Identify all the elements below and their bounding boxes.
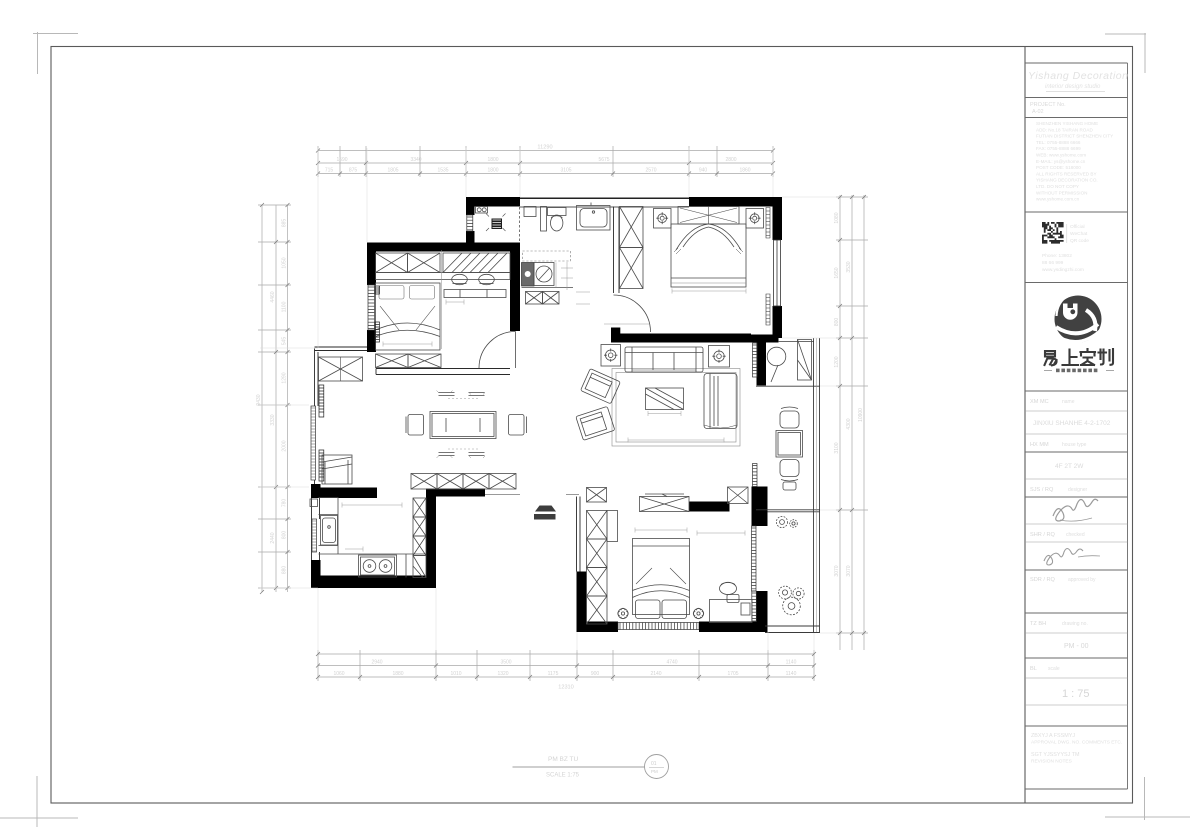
svg-text:Yishang Decoration: Yishang Decoration <box>1028 70 1128 82</box>
svg-text:1860: 1860 <box>739 168 750 174</box>
svg-text:715: 715 <box>325 168 334 174</box>
svg-text:3530: 3530 <box>846 261 852 272</box>
svg-text:9430: 9430 <box>256 394 262 405</box>
svg-text:1650: 1650 <box>834 267 840 278</box>
svg-text:checked: checked <box>1066 532 1085 538</box>
svg-text:REVISION NOTES: REVISION NOTES <box>1031 759 1072 765</box>
svg-text:WEB: www.yshome.com: WEB: www.yshome.com <box>1036 153 1086 158</box>
svg-text:SHR / RQ: SHR / RQ <box>1030 532 1056 538</box>
svg-text:1080: 1080 <box>834 212 840 223</box>
svg-text:A-02: A-02 <box>1032 109 1044 115</box>
svg-text:XM MC: XM MC <box>1030 399 1049 405</box>
svg-text:1290: 1290 <box>282 372 288 383</box>
svg-text:01: 01 <box>651 761 657 767</box>
svg-text:ADD: No.18 TAIRAN ROAD: ADD: No.18 TAIRAN ROAD <box>1036 127 1093 132</box>
svg-text:900: 900 <box>591 671 600 677</box>
svg-text:PM: PM <box>651 769 658 774</box>
svg-text:SCALE 1:75: SCALE 1:75 <box>546 773 580 779</box>
svg-text:1060: 1060 <box>333 671 344 677</box>
svg-text:885: 885 <box>282 219 288 228</box>
svg-text:WITHOUT PERMISSION: WITHOUT PERMISSION <box>1036 190 1087 195</box>
svg-text:ZBXYJ A FSSMYJ: ZBXYJ A FSSMYJ <box>1031 733 1075 739</box>
svg-text:2800: 2800 <box>725 157 736 163</box>
svg-text:5675: 5675 <box>598 157 609 163</box>
svg-text:PM BZ TU: PM BZ TU <box>548 756 579 763</box>
svg-text:WeChat: WeChat <box>1070 231 1088 237</box>
svg-text:JINXIU SHANHE 4-2-1702: JINXIU SHANHE 4-2-1702 <box>1033 420 1111 427</box>
svg-text:11290: 11290 <box>537 145 552 151</box>
svg-text:POST CODE: 518000: POST CODE: 518000 <box>1036 165 1081 170</box>
svg-text:www.ysdingzhi.com: www.ysdingzhi.com <box>1042 267 1084 273</box>
svg-text:4F 2T 2W: 4F 2T 2W <box>1055 463 1084 470</box>
svg-text:1200: 1200 <box>834 356 840 367</box>
svg-text:designer: designer <box>1068 487 1088 493</box>
svg-text:2140: 2140 <box>650 671 661 677</box>
svg-text:4460: 4460 <box>270 291 276 302</box>
svg-text:2000: 2000 <box>282 440 288 451</box>
svg-text:FUTIAN DISTRICT SHENZHEN CITY: FUTIAN DISTRICT SHENZHEN CITY <box>1036 134 1113 139</box>
svg-text:1010: 1010 <box>450 671 461 677</box>
svg-text:4300: 4300 <box>846 418 852 429</box>
svg-text:2940: 2940 <box>371 660 382 666</box>
svg-text:PROJECT No.: PROJECT No. <box>1030 102 1066 108</box>
svg-text:780: 780 <box>282 499 288 508</box>
svg-text:12310: 12310 <box>558 685 574 691</box>
svg-text:APPROVAL DWG. NO. COMMENTS ETC: APPROVAL DWG. NO. COMMENTS ETC. <box>1031 740 1122 746</box>
svg-text:SDR / RQ: SDR / RQ <box>1030 577 1056 583</box>
svg-text:approved by: approved by <box>1068 577 1096 583</box>
svg-text:LTD. DO NOT COPY: LTD. DO NOT COPY <box>1036 184 1079 189</box>
svg-text:1590: 1590 <box>336 157 347 163</box>
svg-text:545: 545 <box>282 337 288 346</box>
svg-text:3500: 3500 <box>500 660 511 666</box>
svg-text:1140: 1140 <box>786 671 797 677</box>
svg-text:1705: 1705 <box>727 671 738 677</box>
svg-text:PM - 00: PM - 00 <box>1064 643 1089 650</box>
svg-text:house type: house type <box>1062 442 1087 448</box>
svg-text:1050: 1050 <box>282 257 288 268</box>
svg-text:YISHANG DECORATION CO.: YISHANG DECORATION CO. <box>1036 178 1098 183</box>
svg-text:880: 880 <box>282 566 288 575</box>
svg-text:800: 800 <box>834 318 840 327</box>
svg-text:Official: Official <box>1070 224 1085 230</box>
svg-text:drawing no.: drawing no. <box>1062 621 1088 627</box>
svg-text:1140: 1140 <box>786 660 797 666</box>
svg-text:3105: 3105 <box>560 168 571 174</box>
svg-text:800: 800 <box>282 531 288 540</box>
svg-text:3340: 3340 <box>410 157 421 163</box>
svg-text:3070: 3070 <box>846 565 852 576</box>
svg-text:SGT YJSSYYSJ TM: SGT YJSSYYSJ TM <box>1031 752 1080 758</box>
svg-text:2570: 2570 <box>645 168 656 174</box>
svg-text:3100: 3100 <box>834 442 840 453</box>
svg-text:1805: 1805 <box>387 168 398 174</box>
svg-text:940: 940 <box>699 168 708 174</box>
svg-text:1880: 1880 <box>392 671 403 677</box>
svg-text:1100: 1100 <box>282 301 288 312</box>
svg-text:4740: 4740 <box>666 660 677 666</box>
svg-text:88 66 999: 88 66 999 <box>1042 260 1064 266</box>
svg-text:scale: scale <box>1048 666 1060 672</box>
svg-text:1320: 1320 <box>497 671 508 677</box>
svg-text:1175: 1175 <box>548 671 559 677</box>
svg-text:SJS / RQ: SJS / RQ <box>1030 487 1054 493</box>
svg-text:2440: 2440 <box>270 532 276 543</box>
svg-text:1800: 1800 <box>487 157 498 163</box>
svg-text:3070: 3070 <box>834 565 840 576</box>
svg-text:3330: 3330 <box>270 414 276 425</box>
svg-text:interior design studio: interior design studio <box>1045 84 1101 90</box>
svg-text:1535: 1535 <box>437 168 448 174</box>
svg-text:TEL: 0755-8888 6666: TEL: 0755-8888 6666 <box>1036 140 1081 145</box>
svg-text:1 : 75: 1 : 75 <box>1062 688 1090 700</box>
svg-text:E-MAIL: ys@yshome.cn: E-MAIL: ys@yshome.cn <box>1036 159 1086 164</box>
svg-text:name: name <box>1062 399 1075 405</box>
svg-text:QR code: QR code <box>1070 238 1089 244</box>
svg-text:875: 875 <box>349 168 358 174</box>
svg-text:SHENZHEN YISHANG HOME: SHENZHEN YISHANG HOME <box>1036 121 1098 126</box>
svg-text:www.yshome.com.cn: www.yshome.com.cn <box>1036 197 1080 202</box>
svg-text:FAX: 0755-8888 6699: FAX: 0755-8888 6699 <box>1036 146 1081 151</box>
svg-text:ALL RIGHTS RESERVED BY: ALL RIGHTS RESERVED BY <box>1036 171 1097 176</box>
svg-text:BL: BL <box>1030 666 1037 672</box>
svg-text:1800: 1800 <box>487 168 498 174</box>
svg-text:Phone: 13802: Phone: 13802 <box>1042 253 1072 259</box>
svg-text:10900: 10900 <box>858 408 864 422</box>
svg-text:HX MM: HX MM <box>1030 442 1049 448</box>
svg-text:TZ BH: TZ BH <box>1030 621 1046 627</box>
